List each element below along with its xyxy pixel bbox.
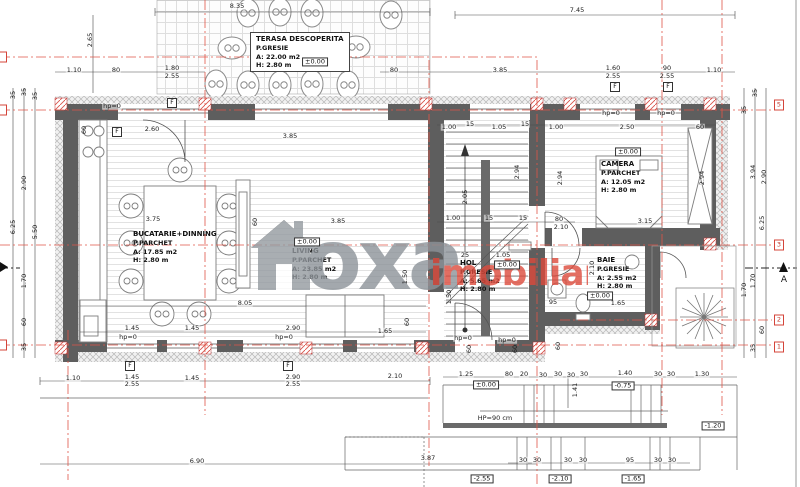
room-finish: P.PARCHET (133, 239, 217, 247)
watermark-text-red: imobiliare (430, 253, 588, 294)
room-label-camera: CAMERA P.PARCHET A: 12.05 m2 H: 2.80 m (601, 160, 645, 194)
room-height: H: 2.80 m (597, 282, 637, 290)
room-name: BUCATARIE+DINNING (133, 230, 217, 239)
room-name: TERASA DESCOPERITA (256, 35, 344, 44)
room-height: H: 2.80 m (133, 256, 217, 264)
room-area: A: 17.85 m2 (133, 248, 217, 256)
kitchen-counter (79, 120, 107, 342)
room-area: A: 2.55 m2 (597, 274, 637, 282)
room-area: A: 22.00 m2 (256, 53, 344, 61)
room-label-bucatarie: BUCATARIE+DINNING P.PARCHET A: 17.85 m2 … (133, 230, 217, 264)
closet (688, 128, 712, 224)
floor-plan-canvas: TERASA DESCOPERITA P.GRESIE A: 22.00 m2 … (0, 0, 800, 487)
room-height: H: 2.80 m (256, 61, 344, 69)
room-finish: P.GRESIE (256, 44, 344, 52)
room-label-terasa: TERASA DESCOPERITA P.GRESIE A: 22.00 m2 … (250, 32, 350, 72)
room-finish: P.GRESIE (597, 265, 637, 273)
watermark: oxa imobiliare (248, 202, 588, 302)
room-area: A: 12.05 m2 (601, 178, 645, 186)
room-label-baie: BAIE P.GRESIE A: 2.55 m2 H: 2.80 m (597, 256, 637, 290)
room-name: BAIE (597, 256, 637, 265)
plant (680, 293, 728, 341)
room-name: CAMERA (601, 160, 645, 169)
room-finish: P.PARCHET (601, 169, 645, 177)
room-height: H: 2.80 m (601, 186, 645, 194)
